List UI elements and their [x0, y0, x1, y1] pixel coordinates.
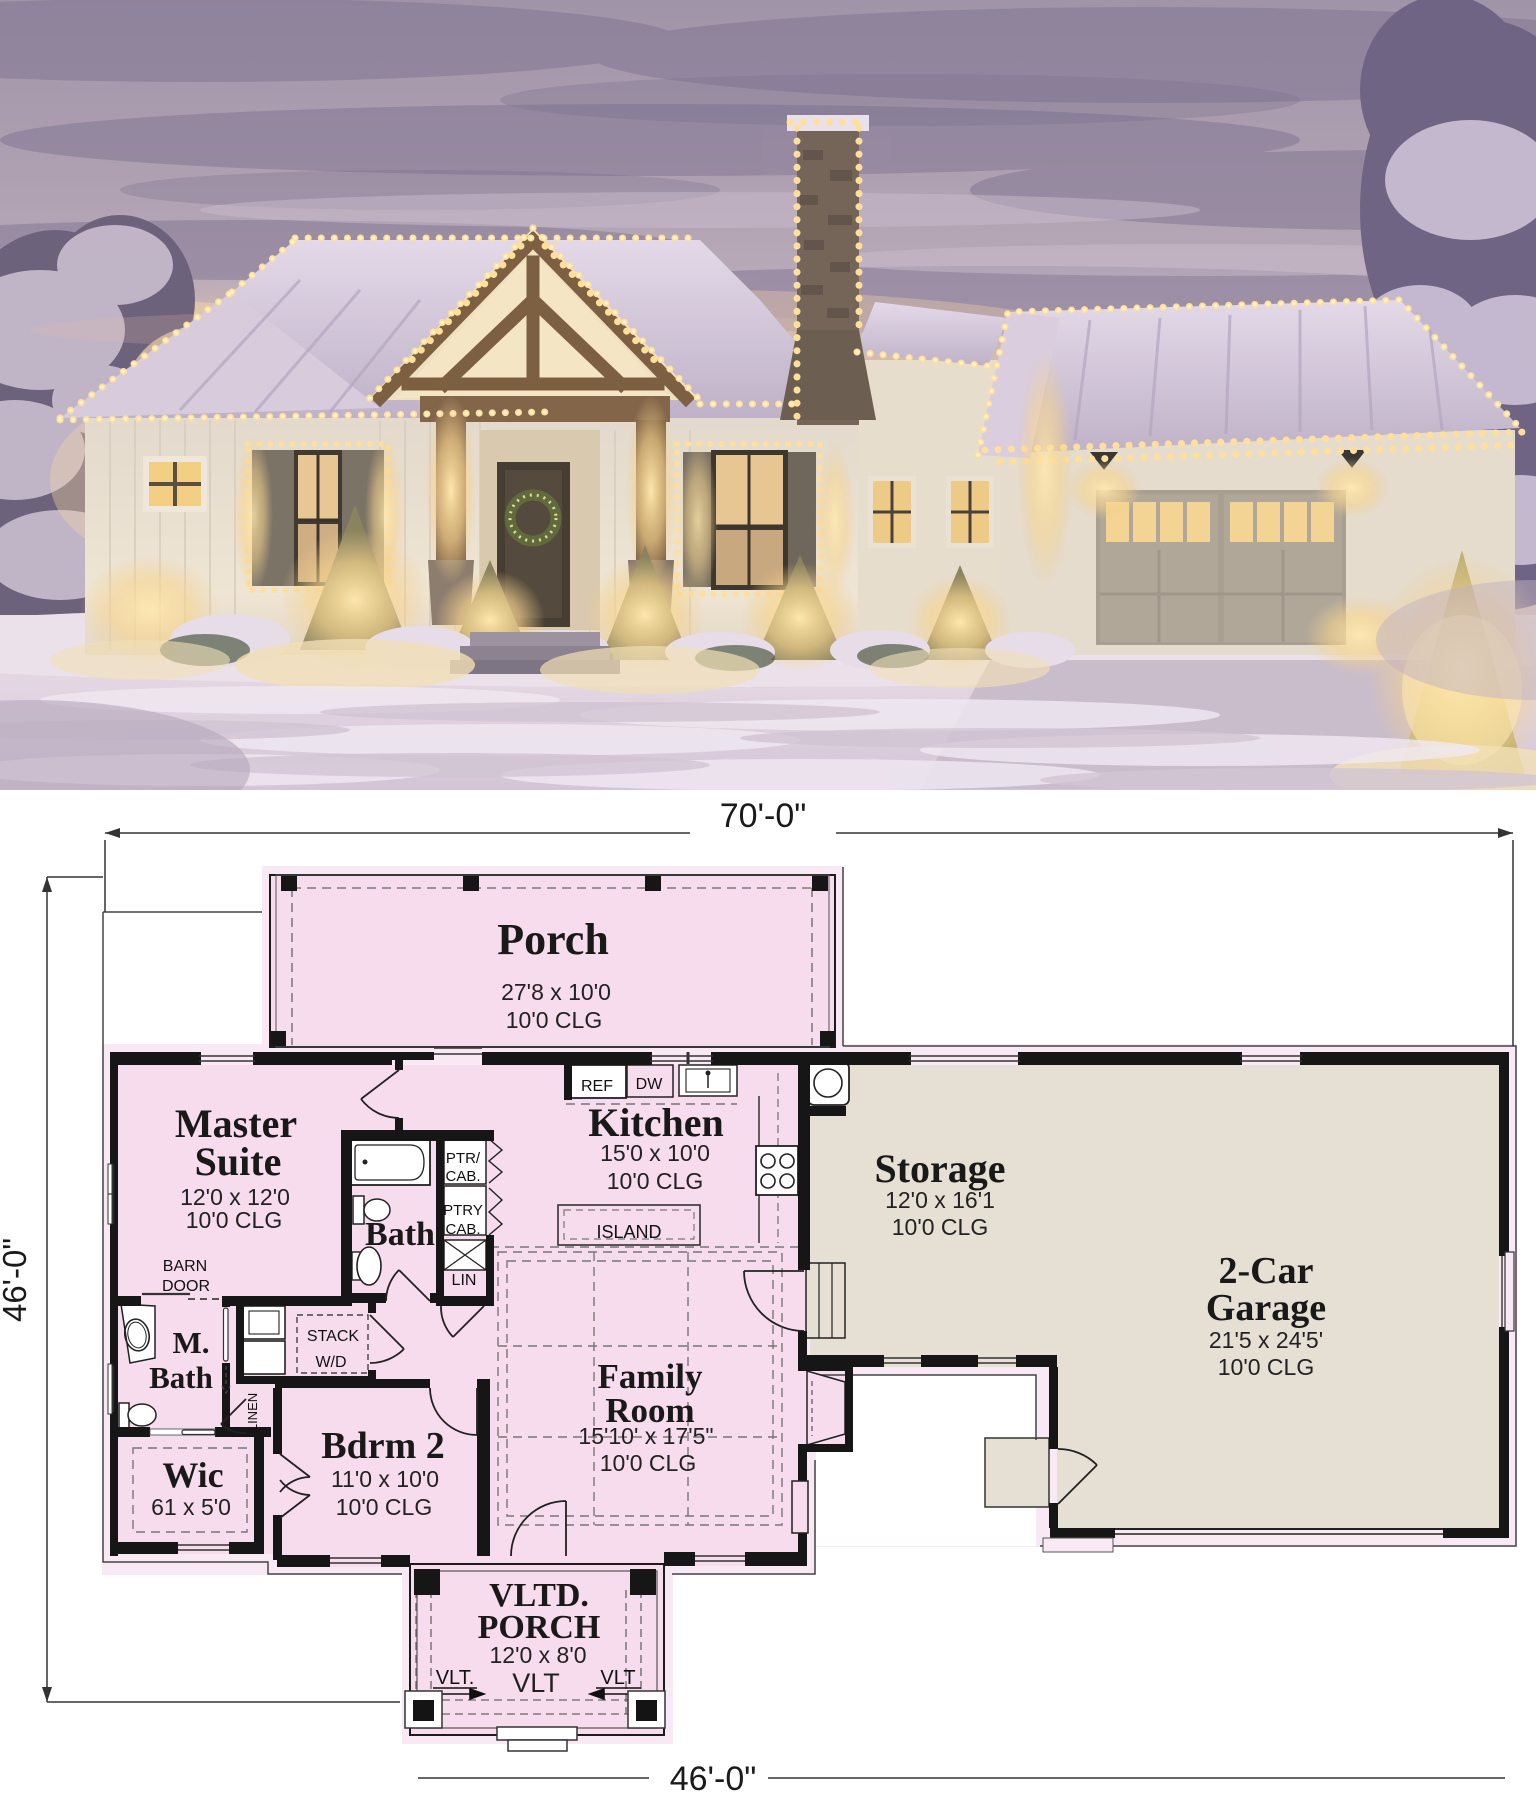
svg-text:LINEN: LINEN — [245, 1393, 260, 1431]
svg-text:10'0 CLG: 10'0 CLG — [1218, 1354, 1314, 1380]
svg-text:PTRY: PTRY — [443, 1202, 483, 1219]
svg-text:Bdrm 2: Bdrm 2 — [321, 1425, 445, 1467]
svg-text:DW: DW — [636, 1076, 664, 1093]
svg-text:Suite: Suite — [195, 1139, 282, 1184]
svg-text:Porch: Porch — [497, 915, 609, 964]
svg-text:15'10' x 17'5": 15'10' x 17'5" — [578, 1423, 713, 1449]
svg-text:BARN: BARN — [163, 1258, 207, 1275]
svg-text:STACK: STACK — [307, 1328, 359, 1345]
svg-text:70'-0": 70'-0" — [720, 797, 807, 835]
svg-text:Kitchen: Kitchen — [588, 1100, 724, 1145]
svg-text:PORCH: PORCH — [478, 1609, 601, 1646]
svg-text:Garage: Garage — [1206, 1287, 1326, 1329]
svg-text:12'0 x 16'1: 12'0 x 16'1 — [885, 1187, 995, 1213]
svg-text:W/D: W/D — [315, 1354, 346, 1371]
svg-text:VLT: VLT — [512, 1668, 560, 1698]
svg-text:Bath: Bath — [365, 1216, 435, 1253]
svg-text:10'0 CLG: 10'0 CLG — [506, 1007, 602, 1033]
svg-text:M.: M. — [172, 1325, 209, 1360]
svg-text:DOOR: DOOR — [162, 1278, 210, 1295]
svg-text:10'0 CLG: 10'0 CLG — [892, 1214, 988, 1240]
svg-text:CAB.: CAB. — [445, 1221, 480, 1238]
svg-text:Storage: Storage — [874, 1146, 1005, 1191]
svg-text:46'-0": 46'-0" — [670, 1760, 757, 1798]
svg-text:PTR/: PTR/ — [446, 1150, 481, 1167]
svg-text:Wic: Wic — [162, 1455, 223, 1495]
svg-text:61 x 5'0: 61 x 5'0 — [151, 1494, 231, 1520]
svg-text:REF: REF — [581, 1078, 613, 1095]
svg-text:2-Car: 2-Car — [1219, 1250, 1314, 1292]
svg-text:VLT.: VLT. — [436, 1667, 475, 1689]
svg-text:10'0 CLG: 10'0 CLG — [600, 1450, 696, 1476]
svg-text:ISLAND: ISLAND — [596, 1222, 661, 1242]
svg-text:27'8 x 10'0: 27'8 x 10'0 — [501, 979, 611, 1005]
svg-text:21'5 x 24'5': 21'5 x 24'5' — [1209, 1327, 1323, 1353]
svg-text:15'0 x 10'0: 15'0 x 10'0 — [600, 1140, 710, 1166]
svg-text:CAB.: CAB. — [445, 1168, 480, 1185]
svg-text:VLT: VLT — [600, 1667, 635, 1689]
svg-text:10'0 CLG: 10'0 CLG — [186, 1207, 282, 1233]
svg-text:12'0 x 8'0: 12'0 x 8'0 — [489, 1642, 586, 1668]
svg-text:11'0 x 10'0: 11'0 x 10'0 — [331, 1466, 439, 1492]
svg-text:10'0 CLG: 10'0 CLG — [336, 1494, 432, 1520]
svg-text:10'0 CLG: 10'0 CLG — [607, 1168, 703, 1194]
svg-text:LIN: LIN — [452, 1272, 477, 1289]
svg-text:Bath: Bath — [149, 1360, 213, 1395]
svg-text:46'-0": 46'-0" — [0, 1238, 33, 1322]
